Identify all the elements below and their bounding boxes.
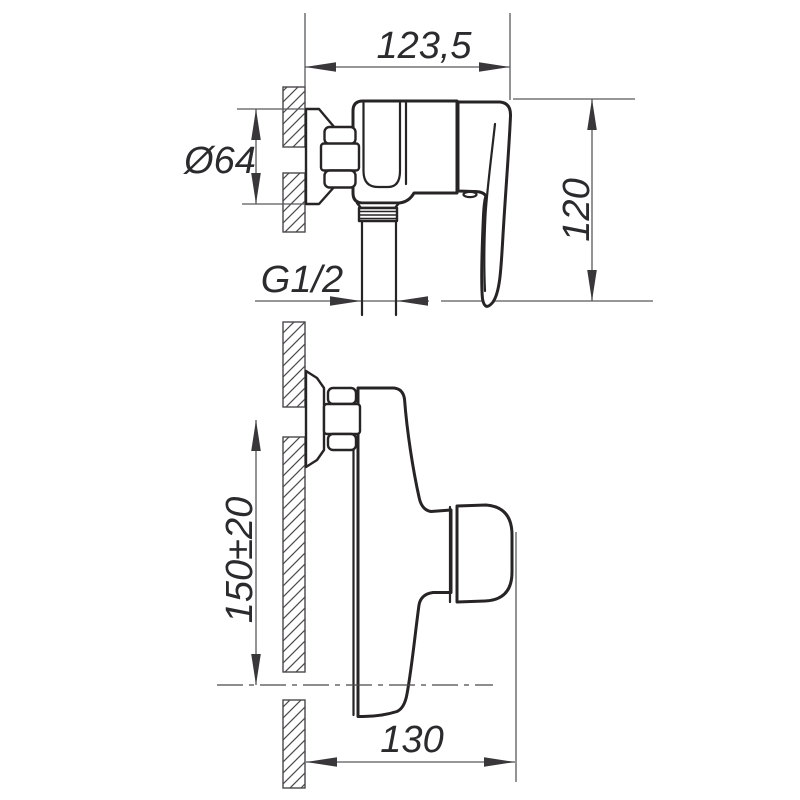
technical-drawing-page: 123,5 Ø64 120 G1/2	[0, 0, 800, 800]
hex-nut-side	[321, 127, 359, 188]
eccentric-cone-connector	[306, 371, 324, 467]
dim-label-side-height: 120	[556, 178, 598, 241]
dim-label-outlet-thread: G1/2	[261, 259, 343, 301]
mixer-body-side	[353, 101, 457, 203]
handle-knob-front	[450, 505, 512, 602]
dim-label-overall-width: 130	[380, 719, 443, 761]
wall-section-front-view	[283, 322, 305, 788]
dim-label-flange-diameter: Ø64	[182, 140, 256, 182]
dim-label-mount-distance: 150±20	[219, 497, 261, 624]
hex-nut-front	[324, 388, 360, 450]
dim-label-overall-depth: 123,5	[376, 25, 472, 67]
shower-mixer-drawing: 123,5 Ø64 120 G1/2	[0, 0, 800, 800]
